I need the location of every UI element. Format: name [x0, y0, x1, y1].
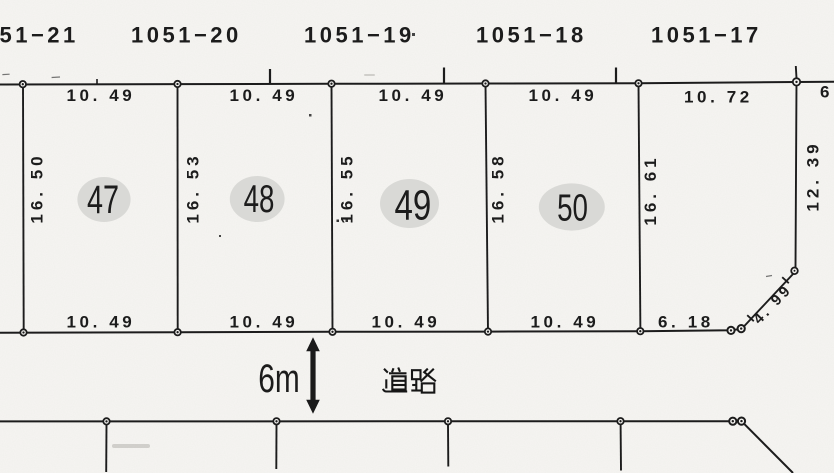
svg-text:10. 49: 10. 49: [67, 313, 136, 332]
svg-text:16. 53: 16. 53: [184, 152, 203, 223]
svg-text:16. 50: 16. 50: [28, 152, 47, 223]
svg-text:48: 48: [244, 177, 275, 221]
svg-text:10. 49: 10. 49: [230, 86, 299, 105]
svg-text:16. 61: 16. 61: [641, 154, 660, 225]
svg-text:6.: 6.: [820, 83, 834, 102]
svg-text:1051−19: 1051−19: [304, 23, 415, 48]
svg-text:16. 58: 16. 58: [489, 152, 508, 223]
svg-text:10. 72: 10. 72: [684, 88, 753, 107]
svg-text:1051−18: 1051−18: [476, 23, 587, 48]
svg-text:10. 49: 10. 49: [529, 86, 598, 105]
svg-text:10. 49: 10. 49: [531, 313, 600, 332]
svg-text:10. 49: 10. 49: [67, 86, 136, 105]
svg-text:10. 49: 10. 49: [379, 86, 448, 105]
svg-text:10. 49: 10. 49: [372, 313, 441, 332]
svg-text:10. 49: 10. 49: [230, 313, 299, 332]
svg-text:50: 50: [557, 187, 588, 229]
svg-text:1051−21: 1051−21: [0, 23, 79, 48]
svg-text:1051−17: 1051−17: [651, 23, 762, 48]
svg-text:16. 55: 16. 55: [338, 152, 357, 223]
svg-text:49: 49: [394, 181, 431, 229]
svg-text:6. 18: 6. 18: [658, 313, 714, 332]
svg-text:1051−20: 1051−20: [131, 23, 242, 48]
svg-text:47: 47: [87, 177, 119, 222]
svg-text:6m: 6m: [258, 357, 300, 401]
svg-text:12. 39: 12. 39: [804, 140, 823, 211]
